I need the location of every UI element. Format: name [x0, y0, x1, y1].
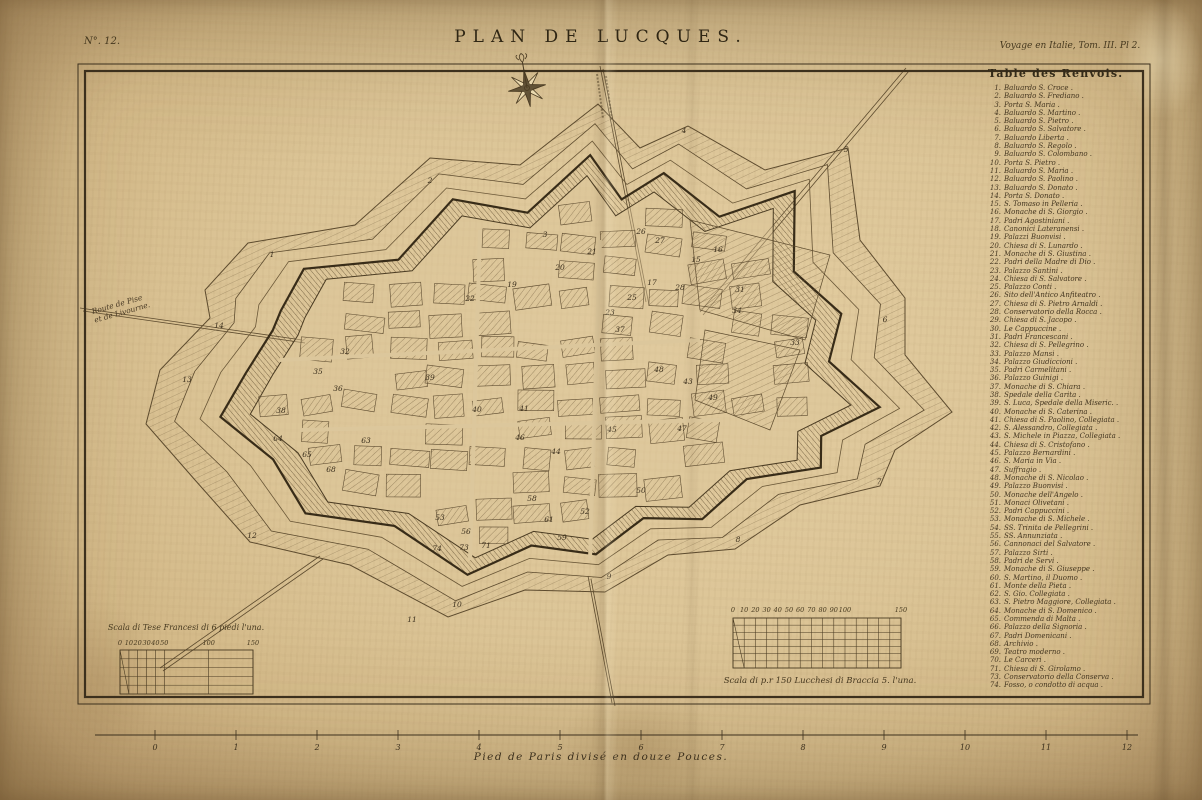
svg-text:60: 60	[796, 606, 804, 614]
legend-item: 1.Baluardo S. Croce .	[988, 84, 1145, 92]
legend-item: 45.Palazzo Bernardini .	[988, 449, 1145, 457]
svg-text:50: 50	[785, 606, 793, 614]
legend-item: 66.Palazzo della Signoria .	[988, 623, 1145, 631]
map-marker: 34	[732, 306, 742, 315]
map-marker: 27	[654, 236, 665, 245]
map-marker: 20	[554, 263, 565, 272]
map-marker: 32	[340, 347, 350, 356]
legend-item: 26.Sito dell'Antico Anfiteatro .	[988, 291, 1145, 299]
legend-item: 70.Le Carceri .	[988, 656, 1145, 664]
legend-item: 61.Monte della Pieta .	[988, 582, 1145, 590]
legend-item: 24.Chiesa di S. Salvatore .	[988, 275, 1145, 283]
map-marker: 46	[514, 433, 525, 442]
legend-item: 69.Teatro moderno .	[988, 648, 1145, 656]
svg-text:0: 0	[731, 606, 735, 614]
map-marker: 49	[707, 393, 718, 402]
legend-item: 63.S. Pietro Maggiore, Collegiata .	[988, 598, 1145, 606]
map-marker: 7	[877, 477, 882, 486]
map-marker: 41	[518, 404, 529, 413]
svg-text:70: 70	[807, 606, 815, 614]
legend-item: 25.Palazzo Conti .	[988, 283, 1145, 291]
legend-item: 51.Monaci Olivetani .	[988, 499, 1145, 507]
map-marker: 14	[214, 321, 224, 330]
map-marker: 19	[507, 280, 517, 289]
legend-item: 18.Canonici Lateranensi .	[988, 225, 1145, 233]
legend-item: 2.Baluardo S. Frediano .	[988, 92, 1145, 100]
legend-item: 13.Baluardo S. Donato .	[988, 184, 1145, 192]
map-marker: 50	[636, 486, 646, 495]
map-marker: 25	[626, 293, 637, 302]
legend-item: 37.Monache di S. Chiara .	[988, 383, 1145, 391]
legend-item: 40.Monache di S. Caterina .	[988, 408, 1145, 416]
legend-item: 42.S. Alessandro, Collegiata .	[988, 424, 1145, 432]
svg-text:50: 50	[160, 639, 168, 647]
ruler: 0123456789101112	[95, 730, 1138, 752]
svg-text:30: 30	[142, 639, 150, 647]
map-sheet: 1234567891011121314151617192021222325262…	[0, 0, 1202, 800]
map-marker: 53	[435, 513, 445, 522]
legend-list: 1.Baluardo S. Croce .2.Baluardo S. Fredi…	[988, 84, 1145, 690]
map-marker: 56	[461, 527, 471, 536]
map-marker: 43	[682, 377, 693, 386]
svg-text:100: 100	[202, 639, 214, 647]
compass-rose-icon	[502, 50, 549, 110]
legend-item: 22.Padri della Madre di Dio .	[988, 258, 1145, 266]
map-marker: 4	[681, 126, 687, 135]
legend-title: Table des Renvois.	[988, 67, 1145, 80]
ruler-caption: Pied de Paris divisé en douze Pouces.	[0, 751, 1202, 763]
legend-item: 49.Palazzo Buonvisi .	[988, 482, 1145, 490]
map-marker: 31	[735, 285, 745, 294]
legend-item: 23.Palazzo Santini .	[988, 267, 1145, 275]
map-marker: 59	[557, 533, 567, 542]
scale-bar-lucchese: 0102030405060708090100150	[731, 606, 907, 668]
map-marker: 3	[543, 230, 548, 239]
map-marker: 40	[471, 405, 482, 414]
svg-text:150: 150	[247, 639, 259, 647]
legend-item: 47.Suffragio .	[988, 466, 1145, 474]
legend-item: 67.Padri Domenicani .	[988, 632, 1145, 640]
map-marker: 74	[432, 544, 442, 553]
map-marker: 58	[527, 494, 537, 503]
legend-item: 41.Chiesa di S. Paolino, Collegiata .	[988, 416, 1145, 424]
map-marker: 8	[736, 535, 741, 544]
edition-label: Voyage en Italie, Tom. III. Pl 2.	[982, 41, 1158, 51]
svg-text:10: 10	[125, 639, 133, 647]
legend-item: 44.Chiesa di S. Cristofano .	[988, 441, 1145, 449]
legend-item: 59.Monache di S. Giuseppe .	[988, 565, 1145, 573]
legend-item: 53.Monache di S. Michele .	[988, 515, 1145, 523]
legend-item: 31.Padri Francescani .	[988, 333, 1145, 341]
map-marker: 26	[635, 227, 646, 236]
legend-item: 29.Chiesa di S. Jacopo .	[988, 316, 1145, 324]
map-marker: 5	[844, 145, 849, 154]
scale-caption-french: Scala di Tese Francesi di 6 piedi l'una.	[100, 623, 272, 632]
legend-item: 10.Porta S. Pietro .	[988, 159, 1145, 167]
legend-item: 5.Baluardo S. Pietro .	[988, 117, 1145, 125]
legend-item: 21.Monache di S. Giustina .	[988, 250, 1145, 258]
map-marker: 35	[313, 367, 323, 376]
map-marker: 13	[182, 375, 192, 384]
svg-text:20: 20	[133, 639, 142, 647]
legend-item: 58.Padri de Servi .	[988, 557, 1145, 565]
legend-item: 20.Chiesa di S. Lunardo .	[988, 242, 1145, 250]
legend-item: 19.Palazzi Buonvisi .	[988, 233, 1145, 241]
scale-caption-lucchese: Scala di p.r 150 Lucchesi di Braccia 5. …	[700, 676, 940, 686]
legend-item: 48.Monache di S. Nicolao .	[988, 474, 1145, 482]
svg-text:40: 40	[773, 606, 782, 614]
legend-item: 64.Monache di S. Domenico .	[988, 607, 1145, 615]
map-marker: 33	[790, 338, 800, 347]
legend-item: 14.Porta S. Donato .	[988, 192, 1145, 200]
scale-bar-french: 01020304050100150	[118, 639, 259, 694]
legend-item: 52.Padri Cappuccini .	[988, 507, 1145, 515]
map-marker: 22	[464, 294, 475, 303]
map-marker: 71	[481, 541, 491, 550]
map-marker: 12	[247, 531, 257, 540]
legend-item: 46.S. Maria in Via .	[988, 457, 1145, 465]
map-marker: 68	[326, 465, 336, 474]
legend-item: 16.Monache di S. Giorgio .	[988, 208, 1145, 216]
legend-item: 56.Cannonaci del Salvatore .	[988, 540, 1145, 548]
map-marker: 10	[452, 600, 462, 609]
legend-item: 27.Chiesa di S. Pietro Arnaldi .	[988, 300, 1145, 308]
legend-item: 30.Le Cappuccine .	[988, 325, 1145, 333]
map-marker: 65	[302, 450, 312, 459]
legend-item: 35.Padri Carmelitani .	[988, 366, 1145, 374]
map-marker: 36	[333, 384, 343, 393]
svg-text:40: 40	[150, 639, 159, 647]
map-marker: 23	[604, 308, 615, 317]
legend-item: 50.Monache dell'Angelo .	[988, 491, 1145, 499]
legend-item: 28.Conservatorio della Rocca .	[988, 308, 1145, 316]
legend-item: 74.Fosso, o condotto di acqua .	[988, 681, 1145, 689]
svg-text:90: 90	[830, 606, 838, 614]
map-marker: 1	[270, 250, 275, 259]
map-marker: 9	[607, 572, 612, 581]
legend-item: 4.Baluardo S. Martino .	[988, 109, 1145, 117]
svg-text:20: 20	[750, 606, 759, 614]
map-marker: 11	[407, 615, 417, 624]
legend-item: 3.Porta S. Maria .	[988, 101, 1145, 109]
map-marker: 15	[691, 255, 701, 264]
map-marker: 2	[427, 176, 433, 185]
svg-text:100: 100	[839, 606, 851, 614]
map-marker: 16	[713, 245, 723, 254]
map-marker: 47	[676, 424, 687, 433]
legend-item: 65.Commenda di Malta .	[988, 615, 1145, 623]
map-marker: 38	[276, 406, 286, 415]
map-marker: 44	[550, 447, 561, 456]
map-marker: 64	[273, 434, 283, 443]
legend-item: 33.Palazzo Mansi .	[988, 350, 1145, 358]
legend: Table des Renvois. 1.Baluardo S. Croce .…	[988, 67, 1145, 690]
legend-item: 12.Baluardo S. Paolino .	[988, 175, 1145, 183]
legend-item: 11.Baluardo S. Maria .	[988, 167, 1145, 175]
legend-item: 68.Archivio .	[988, 640, 1145, 648]
legend-item: 57.Palazzo Sirti .	[988, 549, 1145, 557]
legend-item: 32.Chiesa di S. Pellegrino .	[988, 341, 1145, 349]
legend-item: 38.Spedale della Carita .	[988, 391, 1145, 399]
map-marker: 37	[615, 325, 625, 334]
svg-text:10: 10	[740, 606, 748, 614]
legend-item: 39.S. Luca, Spedale della Miseric. .	[988, 399, 1145, 407]
legend-item: 71.Chiesa di S. Girolamo .	[988, 665, 1145, 673]
map-marker: 48	[653, 365, 664, 374]
legend-item: 73.Conservatorio della Conserva .	[988, 673, 1145, 681]
svg-text:0: 0	[118, 639, 122, 647]
map-marker: 21	[586, 247, 597, 256]
map-marker: 61	[544, 515, 554, 524]
map-marker: 17	[647, 278, 657, 287]
map-marker: 52	[580, 507, 590, 516]
legend-item: 60.S. Martino, il Duomo .	[988, 574, 1145, 582]
map-marker: 39	[425, 373, 435, 382]
legend-item: 36.Palazzo Guinigi .	[988, 374, 1145, 382]
legend-item: 9.Baluardo S. Colombano .	[988, 150, 1145, 158]
legend-item: 54.SS. Trinita de Pellegrini .	[988, 524, 1145, 532]
legend-item: 8.Baluardo S. Regolo .	[988, 142, 1145, 150]
legend-item: 62.S. Gio. Collegiata .	[988, 590, 1145, 598]
legend-item: 55.SS. Annunziata .	[988, 532, 1145, 540]
svg-text:30: 30	[762, 606, 770, 614]
legend-item: 43.S. Michele in Piazza, Collegiata .	[988, 432, 1145, 440]
map-marker: 6	[883, 315, 888, 324]
map-marker: 73	[459, 543, 469, 552]
legend-item: 15.S. Tomaso in Pelleria .	[988, 200, 1145, 208]
legend-item: 34.Palazzo Giudiccioni .	[988, 358, 1145, 366]
map-marker: 63	[361, 436, 371, 445]
fortification	[146, 104, 952, 617]
legend-item: 7.Baluardo Liberta .	[988, 134, 1145, 142]
legend-item: 6.Baluardo S. Salvatore .	[988, 125, 1145, 133]
svg-text:80: 80	[818, 606, 826, 614]
legend-item: 17.Padri Agostiniani .	[988, 217, 1145, 225]
map-marker: 28	[674, 283, 685, 292]
map-marker: 45	[606, 425, 617, 434]
svg-text:150: 150	[895, 606, 907, 614]
